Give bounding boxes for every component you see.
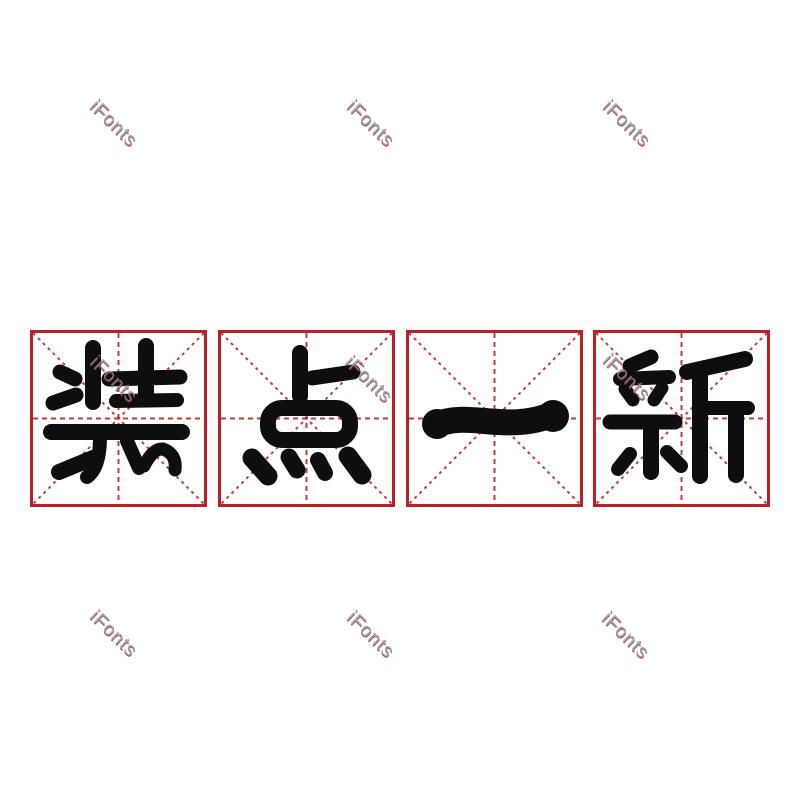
char-zhuang-glyph [30, 330, 207, 507]
poster-canvas: 装 点 [0, 0, 800, 800]
watermark-ifonts: iFonts [85, 96, 142, 152]
grid-cell-dian: 点 [218, 330, 395, 507]
grid-cell-xin: 新 [593, 330, 770, 507]
char-yi-glyph [406, 330, 583, 507]
grid-cell-zhuang: 装 [30, 330, 207, 507]
watermark-ifonts: iFonts [598, 96, 655, 152]
watermark-ifonts: iFonts [85, 606, 142, 662]
char-xin-glyph [593, 330, 770, 507]
grid-cell-yi: 一 [406, 330, 583, 507]
watermark-ifonts: iFonts [597, 608, 654, 664]
watermark-ifonts: iFonts [342, 607, 399, 663]
char-dian-glyph [218, 330, 395, 507]
watermark-ifonts: iFonts [342, 96, 399, 152]
